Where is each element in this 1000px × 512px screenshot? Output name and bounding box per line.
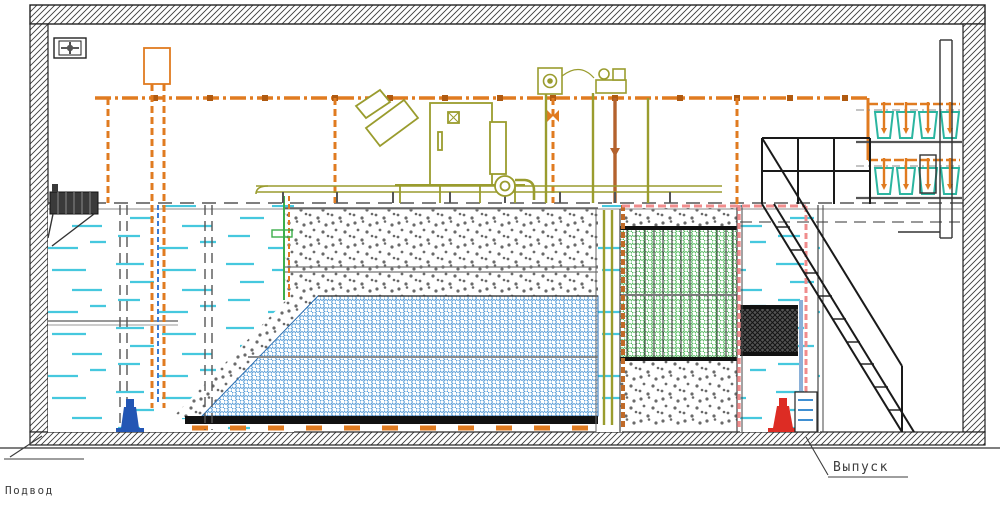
airlift-gap-water xyxy=(596,205,622,432)
roof-slab xyxy=(30,5,985,24)
cad-drawing-canvas: Подвод сточных вод на очистку Выпуск xyxy=(0,0,1000,512)
left-wall xyxy=(30,24,48,432)
dosing-vessel-rack xyxy=(856,40,962,238)
dosing-vessels-row-1 xyxy=(875,102,959,138)
treatment-unit-cross-section xyxy=(0,0,1000,512)
blower-units xyxy=(538,68,626,94)
roof-fan-icon xyxy=(54,38,86,58)
green-tank-top-gravel xyxy=(620,208,737,228)
beam-supports xyxy=(283,192,670,203)
inlet-annotation-line1: Подвод xyxy=(5,485,62,497)
inlet-annotation: Подвод сточных вод на очистку xyxy=(5,462,62,512)
right-wall xyxy=(963,24,985,432)
dosing-tank xyxy=(144,48,170,84)
outlet-annotation: Выпуск xyxy=(833,461,889,475)
dosing-vessels-row-2 xyxy=(875,158,959,194)
lamella-block xyxy=(740,305,798,356)
green-tank-bottom-gravel xyxy=(620,361,737,426)
floor-slab xyxy=(30,432,985,445)
outlet-weir-box xyxy=(795,392,817,432)
floating-media-layer xyxy=(285,208,598,296)
aeration-grid xyxy=(185,416,598,424)
